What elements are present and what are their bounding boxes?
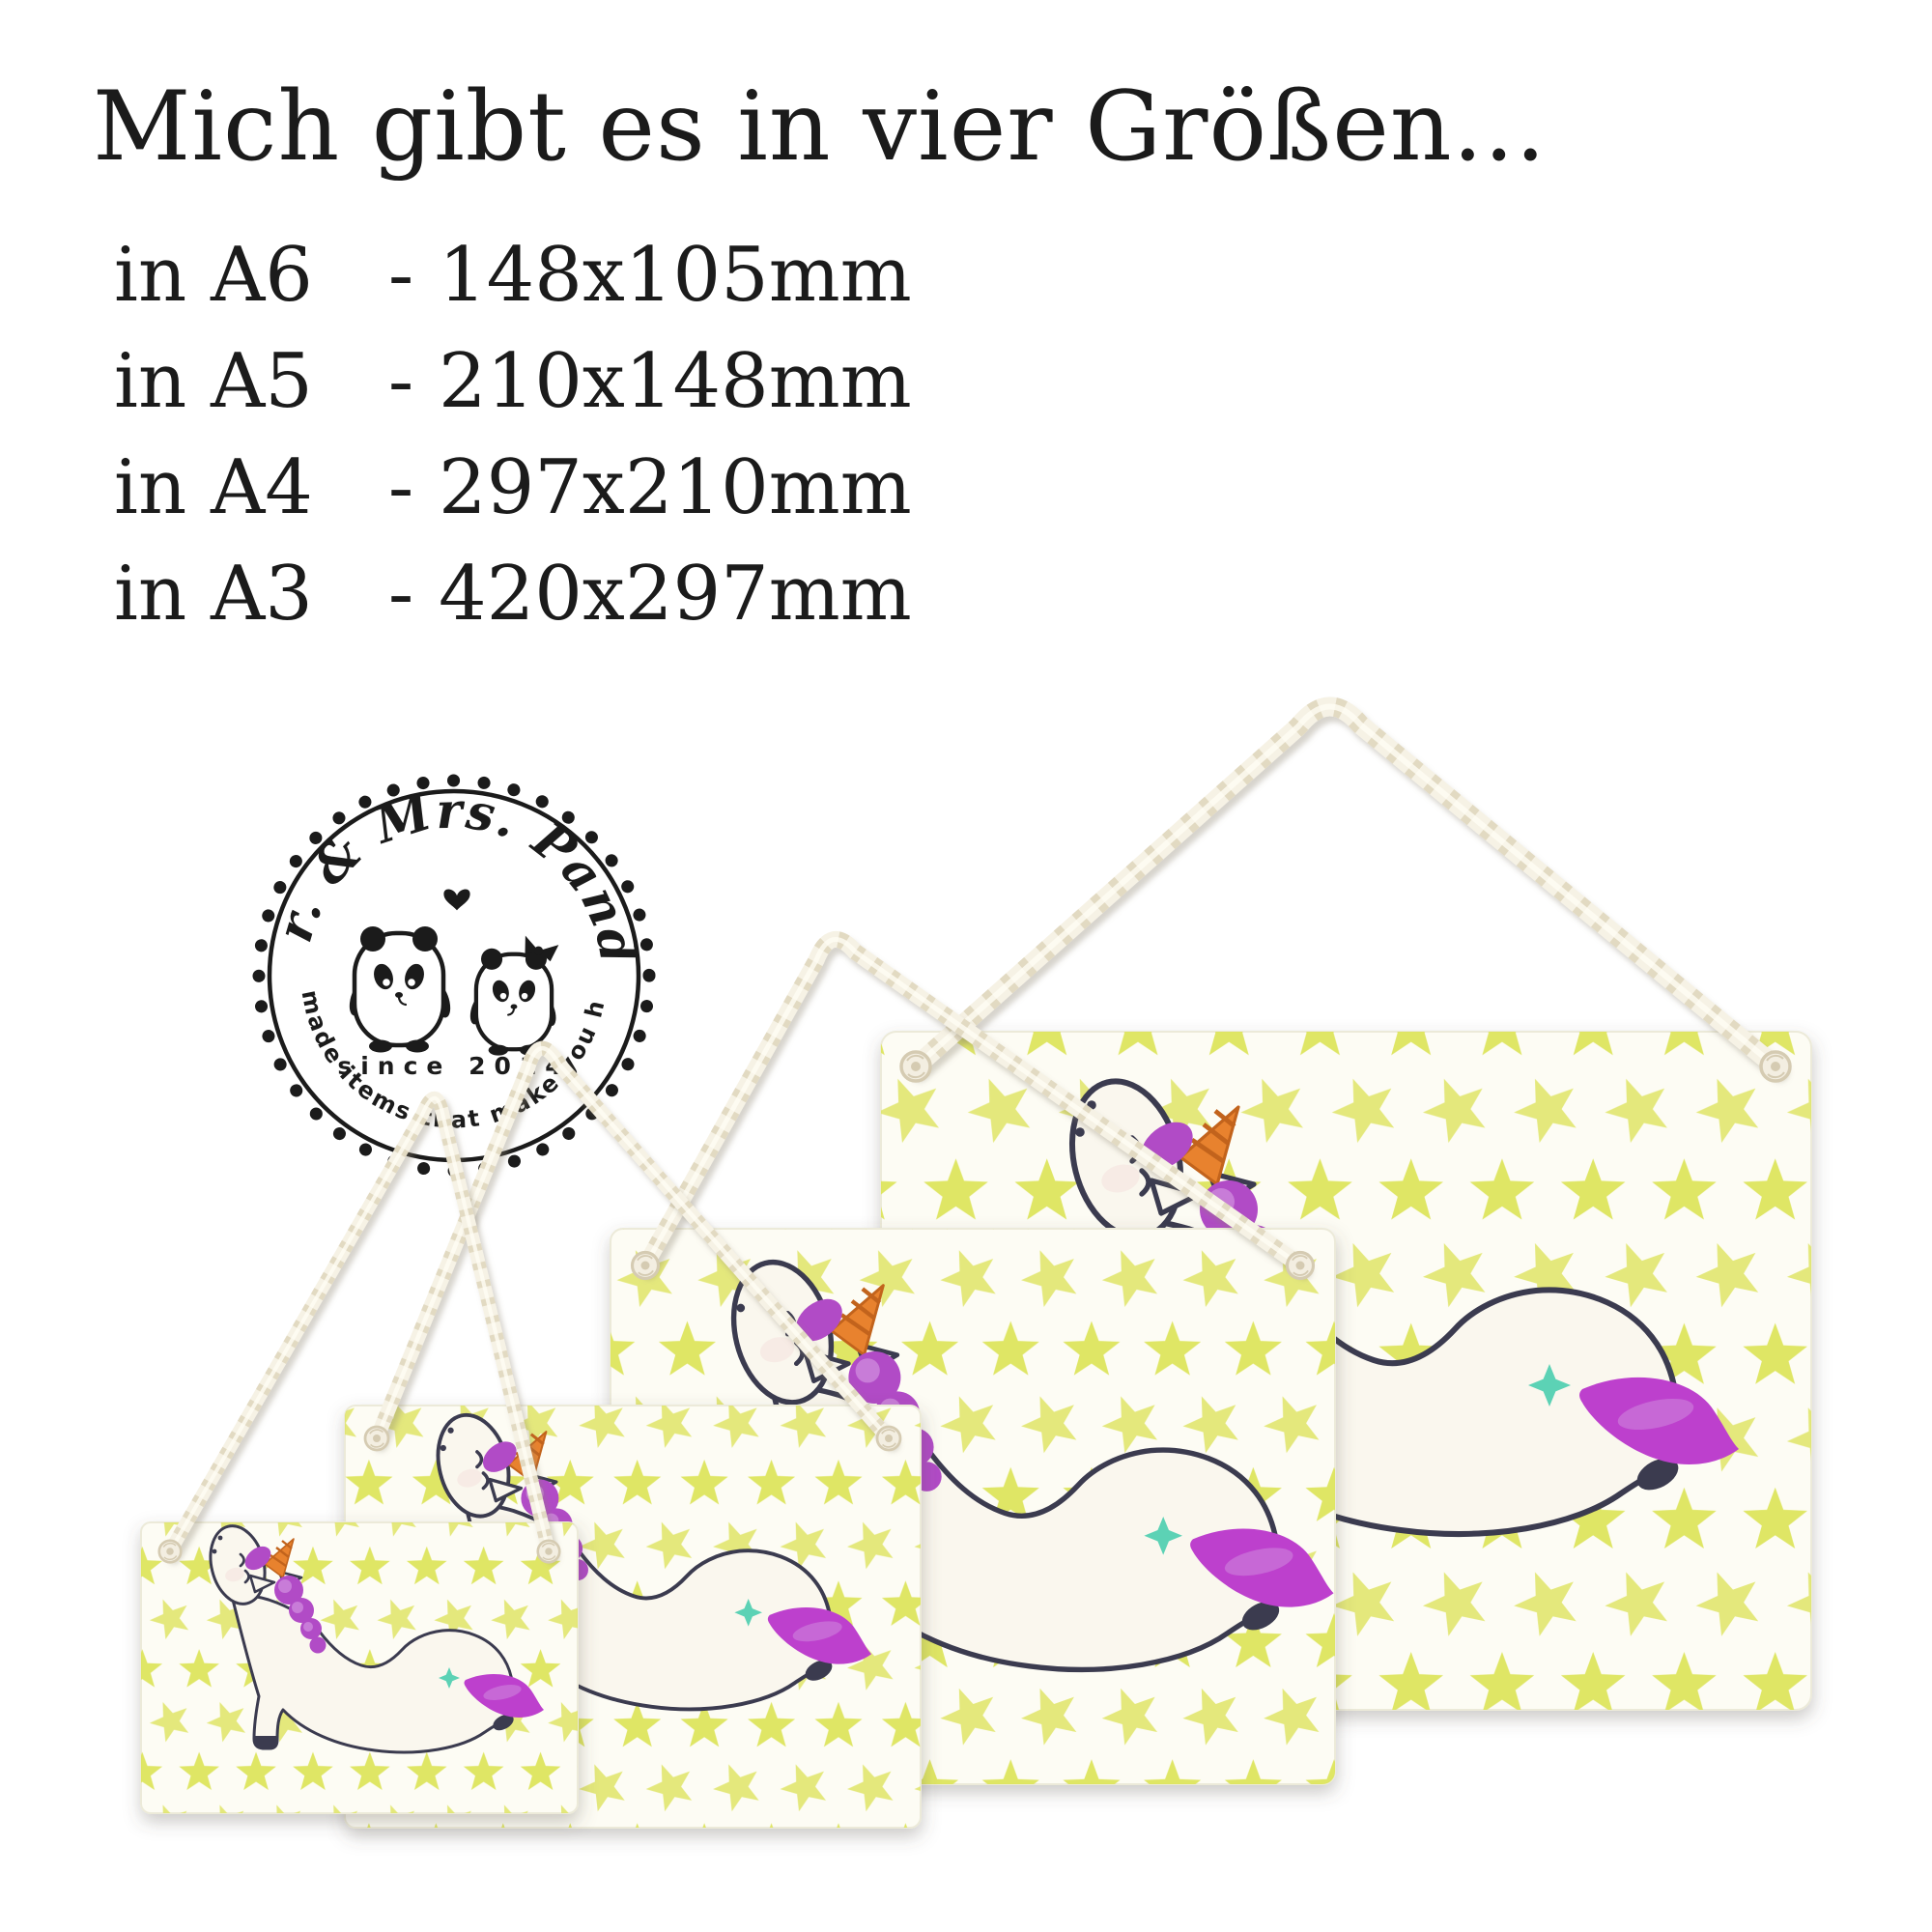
panda-mrs [468,936,559,1056]
size-dimensions: 148x105mm [439,232,912,319]
brand-stamp-logo: Mr. & Mrs. Panda [259,781,649,1171]
size-label: in A5 [114,338,363,425]
size-row-a4: in A4 - 297x210mm [114,435,912,541]
size-dimensions: 210x148mm [439,338,912,425]
size-label: in A3 [114,551,363,638]
size-separator: - [363,551,439,638]
size-separator: - [363,232,439,319]
size-list: in A6 - 148x105mm in A5 - 210x148mm in A… [114,222,912,647]
size-row-a3: in A3 - 420x297mm [114,541,912,647]
page-title: Mich gibt es in vier Größen... [93,71,1547,183]
size-dimensions: 297x210mm [439,444,912,531]
size-label: in A4 [114,444,363,531]
logo-tagline-arc-text: Handmade items that make you happy! [296,954,610,1134]
hanging-rope-a3 [916,706,1776,1066]
size-separator: - [363,338,439,425]
product-image: Mr. & Mrs. Panda [0,0,1932,1932]
size-row-a6: in A6 - 148x105mm [114,222,912,328]
size-label: in A6 [114,232,363,319]
heart-icon [443,889,469,910]
size-row-a5: in A5 - 210x148mm [114,328,912,435]
logo-brand-arc-text: Mr. & Mrs. Panda [266,781,647,988]
size-dimensions: 420x297mm [439,551,912,638]
size-separator: - [363,444,439,531]
panda-mr [346,926,453,1053]
